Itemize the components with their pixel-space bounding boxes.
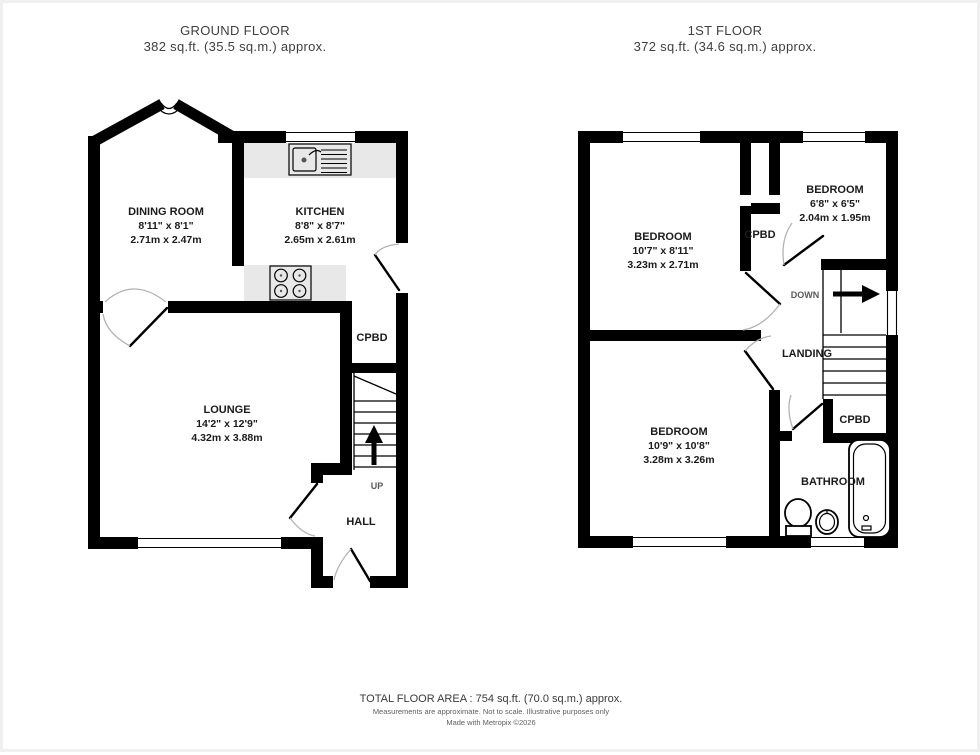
- ground-floor-subtitle: 382 sq.ft. (35.5 sq.m.) approx.: [144, 39, 327, 54]
- bathroom-label: BATHROOM: [801, 476, 865, 488]
- credit-text: Made with Metropix ©2026: [446, 718, 535, 727]
- ground-windows: [138, 131, 355, 549]
- bedroom1-door-icon: [743, 273, 780, 330]
- first-stairs-icon: [823, 270, 886, 399]
- bedroom3-window-icon: [633, 536, 726, 548]
- stairs-down-label: DOWN: [791, 290, 820, 300]
- ground-floor-plan: DINING ROOM 8'11" x 8'1" 2.71m x 2.47m K…: [88, 103, 408, 588]
- hall-label: HALL: [346, 516, 376, 528]
- bedroom2-window-icon: [803, 131, 865, 143]
- first-doors: [743, 223, 823, 429]
- kitchen-imperial: 8'8" x 8'7": [295, 220, 345, 232]
- lounge-hall-door-icon: [290, 484, 317, 536]
- bedroom2-imperial: 6'8" x 6'5": [810, 198, 860, 210]
- disclaimer-text: Measurements are approximate. Not to sca…: [373, 707, 610, 716]
- footer: TOTAL FLOOR AREA : 754 sq.ft. (70.0 sq.m…: [360, 693, 623, 727]
- bedroom1-window-icon: [623, 131, 700, 143]
- stair-side-window-icon: [886, 291, 898, 335]
- bedroom1-label: BEDROOM: [634, 231, 691, 243]
- kitchen-window-icon: [286, 131, 355, 143]
- total-floor-area-text: TOTAL FLOOR AREA : 754 sq.ft. (70.0 sq.m…: [360, 693, 623, 705]
- bedroom1-metric: 3.23m x 2.71m: [627, 259, 698, 271]
- first-floor-plan: BEDROOM 10'7" x 8'11" 3.23m x 2.71m BEDR…: [578, 131, 898, 548]
- dining-room-imperial: 8'11" x 8'1": [138, 220, 193, 232]
- bedroom3-metric: 3.28m x 3.26m: [643, 454, 714, 466]
- toilet-icon: [785, 499, 811, 536]
- bedroom3-imperial: 10'9" x 10'8": [648, 440, 710, 452]
- bedroom3-door-icon: [745, 336, 773, 389]
- first-cupboard-bottom-label: CPBD: [839, 414, 870, 426]
- down-arrow-head: [862, 285, 880, 303]
- bedroom2-label: BEDROOM: [806, 184, 863, 196]
- kitchen-metric: 2.65m x 2.61m: [284, 234, 355, 246]
- floorplan-image: DINING ROOM 8'11" x 8'1" 2.71m x 2.47m K…: [0, 0, 980, 752]
- bedroom3-label: BEDROOM: [650, 426, 707, 438]
- lounge-window-icon: [138, 537, 281, 549]
- front-door-icon: [334, 549, 370, 581]
- kitchen-back-door-icon: [375, 244, 399, 290]
- bedroom2-door-icon: [783, 223, 823, 265]
- dining-room-label: DINING ROOM: [128, 206, 204, 218]
- lounge-metric: 4.32m x 3.88m: [191, 432, 262, 444]
- dining-lounge-door-icon: [103, 289, 167, 346]
- kitchen-counter-top: [244, 143, 396, 178]
- floorplan-svg: DINING ROOM 8'11" x 8'1" 2.71m x 2.47m K…: [3, 3, 980, 755]
- lounge-label: LOUNGE: [203, 404, 250, 416]
- lounge-imperial: 14'2" x 12'9": [196, 418, 258, 430]
- basin-icon: [816, 510, 838, 534]
- bedroom1-imperial: 10'7" x 8'11": [632, 245, 693, 257]
- bathtub-icon: [849, 440, 890, 537]
- first-cupboard-top-label: CPBD: [744, 229, 775, 241]
- bedroom2-metric: 2.04m x 1.95m: [799, 212, 870, 224]
- kitchen-label: KITCHEN: [296, 206, 345, 218]
- dining-room-metric: 2.71m x 2.47m: [130, 234, 201, 246]
- bay-wall-left: [93, 104, 162, 142]
- stairs-up-label: UP: [371, 481, 384, 491]
- ground-cupboard-label: CPBD: [356, 332, 387, 344]
- first-floor-subtitle: 372 sq.ft. (34.6 sq.m.) approx.: [634, 39, 817, 54]
- ground-stairs-icon: [354, 373, 396, 470]
- landing-label: LANDING: [782, 348, 832, 360]
- bathroom-door-icon: [789, 395, 822, 429]
- bay-wall-right: [176, 104, 235, 138]
- bathroom-window-icon: [811, 536, 864, 548]
- ground-floor-title: GROUND FLOOR: [180, 23, 290, 38]
- first-floor-title: 1ST FLOOR: [688, 23, 763, 38]
- plan-titles: GROUND FLOOR 382 sq.ft. (35.5 sq.m.) app…: [144, 23, 817, 54]
